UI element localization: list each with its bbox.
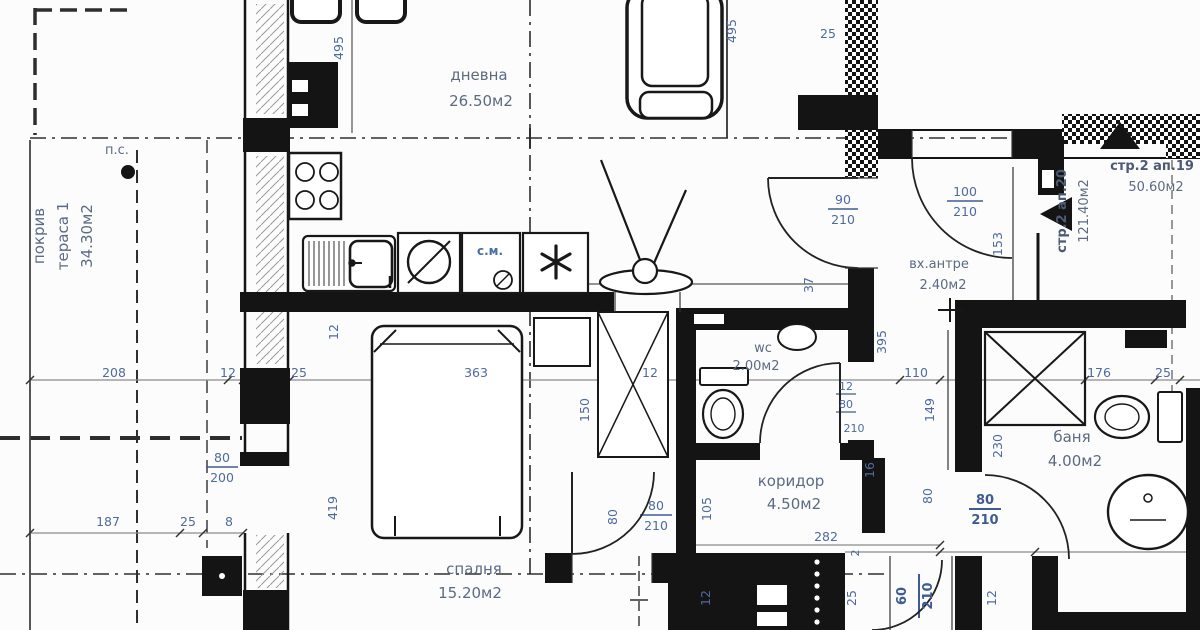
dim-153: 153 bbox=[990, 232, 1005, 256]
area-ap19: 50.60м2 bbox=[1128, 180, 1183, 195]
bath-toilet-icon bbox=[1095, 392, 1182, 442]
label-ap20: стр.2 ап.20 bbox=[1055, 169, 1070, 253]
dim-12: 12 bbox=[839, 380, 853, 393]
room-area-banya: 4.00м2 bbox=[1048, 452, 1102, 470]
wc-toilet-icon bbox=[700, 368, 748, 438]
dim-door-210: 210 bbox=[644, 518, 668, 533]
chair-icon bbox=[357, 0, 405, 22]
dim-37: 37 bbox=[801, 277, 816, 293]
room-area-antre: 2.40м2 bbox=[919, 278, 966, 293]
room-label-spalnya: спалня bbox=[446, 560, 502, 578]
dim-door-60: 60 bbox=[895, 587, 910, 605]
label-ap19: стр.2 ап.19 bbox=[1110, 159, 1194, 174]
dim-208: 208 bbox=[102, 365, 126, 380]
fan-symbol bbox=[600, 160, 692, 294]
room-label-terasa-1: покрив bbox=[30, 208, 48, 264]
dim-419: 419 bbox=[325, 496, 340, 520]
dim-80: 80 bbox=[605, 509, 620, 525]
shower-icon bbox=[985, 332, 1085, 425]
dim-495-living: 495 bbox=[724, 19, 739, 43]
nightstand-icon bbox=[534, 318, 590, 366]
room-label-dnevna: дневна bbox=[450, 66, 507, 84]
dim-16: 16 bbox=[862, 462, 877, 478]
dim-door-80: 80 bbox=[648, 498, 664, 513]
dim-110: 110 bbox=[904, 365, 928, 380]
dim-25: 25 bbox=[844, 590, 859, 606]
door-arc-wc bbox=[760, 363, 840, 443]
dim-187: 187 bbox=[96, 514, 120, 529]
chair-icon bbox=[292, 0, 340, 22]
dim-230: 230 bbox=[990, 434, 1005, 458]
dim-door-200: 200 bbox=[210, 470, 234, 485]
dim-door-80: 80 bbox=[214, 450, 230, 465]
dim-door-100: 100 bbox=[953, 184, 977, 199]
dim-80: 80 bbox=[920, 488, 935, 504]
dim-80: 80 bbox=[839, 398, 853, 411]
dishwasher-icon bbox=[462, 233, 520, 293]
armchair-icon bbox=[627, 0, 722, 118]
wc-sink-icon bbox=[778, 324, 816, 350]
dim-395: 395 bbox=[874, 330, 889, 354]
dim-door-210: 210 bbox=[831, 212, 855, 227]
dim-12: 12 bbox=[642, 365, 658, 380]
room-label-banya: баня bbox=[1053, 428, 1090, 446]
dim-25-top: 25 bbox=[820, 26, 836, 41]
dim-door-210: 210 bbox=[921, 582, 936, 609]
kitchen-sink-icon bbox=[303, 236, 395, 291]
dim-12: 12 bbox=[984, 590, 999, 606]
dim-12: 12 bbox=[220, 365, 236, 380]
floor-plan: дневна 26.50м2 покрив тераса 1 34.30м2 с… bbox=[0, 0, 1200, 630]
wardrobe-icon bbox=[598, 312, 668, 457]
dim-2: 2 bbox=[849, 550, 862, 557]
dim-149: 149 bbox=[922, 398, 937, 422]
dim-363: 363 bbox=[464, 365, 488, 380]
ps-point bbox=[121, 165, 135, 179]
room-label-wc: wc bbox=[754, 341, 772, 356]
dim-door-80-bold: 80 bbox=[976, 493, 994, 508]
dim-210: 210 bbox=[844, 422, 865, 435]
dim-150: 150 bbox=[577, 398, 592, 422]
dim-25: 25 bbox=[180, 514, 196, 529]
room-label-koridor: коридор bbox=[758, 472, 825, 490]
dim-door-210-bold: 210 bbox=[971, 513, 998, 528]
dim-105: 105 bbox=[699, 497, 714, 521]
washing-machine-icon bbox=[398, 233, 460, 293]
floor-plan-drawing: дневна 26.50м2 покрив тераса 1 34.30м2 с… bbox=[0, 0, 1200, 630]
dim-12: 12 bbox=[326, 324, 341, 340]
stove-icon bbox=[289, 153, 341, 219]
room-label-antre: вх.антре bbox=[909, 257, 969, 272]
dim-door-90: 90 bbox=[835, 192, 851, 207]
area-ap20: 121.40м2 bbox=[1077, 179, 1092, 243]
dim-495-kitchen: 495 bbox=[331, 36, 346, 60]
label-ps: п.с. bbox=[105, 143, 129, 158]
room-area-koridor: 4.50м2 bbox=[767, 495, 821, 513]
room-area-dnevna: 26.50м2 bbox=[449, 92, 513, 110]
dim-176: 176 bbox=[1087, 365, 1111, 380]
room-label-terasa-2: тераса 1 bbox=[54, 202, 72, 270]
dim-8: 8 bbox=[225, 514, 233, 529]
bath-sink-icon bbox=[1108, 475, 1188, 549]
bed-icon bbox=[372, 326, 522, 538]
room-area-spalnya: 15.20м2 bbox=[438, 584, 502, 602]
dim-25: 25 bbox=[1155, 365, 1171, 380]
fridge-icon bbox=[523, 233, 588, 293]
dim-door-210: 210 bbox=[953, 204, 977, 219]
dim-282: 282 bbox=[814, 529, 838, 544]
dim-12: 12 bbox=[698, 590, 713, 606]
label-sm: с.м. bbox=[477, 244, 503, 258]
room-area-terasa: 34.30м2 bbox=[78, 204, 96, 268]
dim-25: 25 bbox=[291, 365, 307, 380]
room-area-wc: 2.00м2 bbox=[732, 359, 779, 374]
